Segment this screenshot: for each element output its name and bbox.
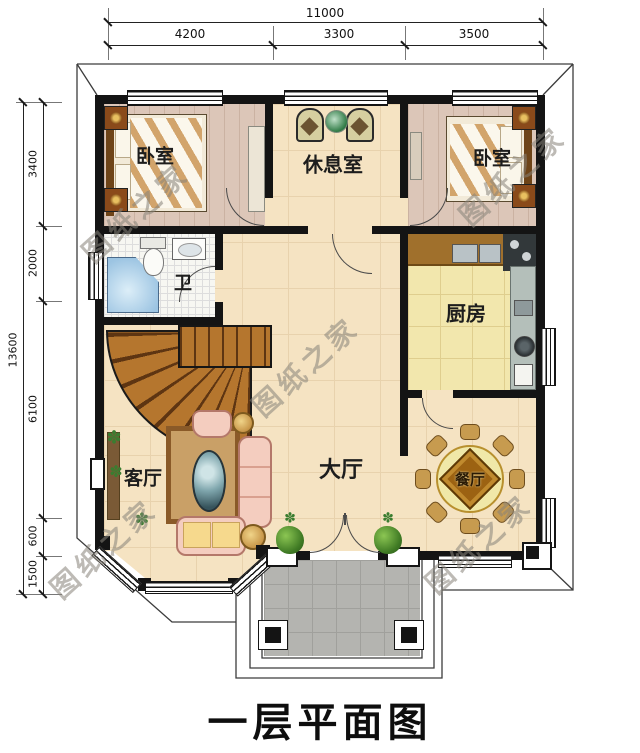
kitchen-appliance [514,364,533,386]
wall-interior [95,317,223,325]
pilaster-corner-fill [526,546,539,559]
bush [374,526,402,554]
side-table-round [232,412,254,434]
dim-left-total: 13600 [7,333,20,368]
dim-line-top-segments [108,45,544,46]
lounge-chair [296,108,324,142]
dim-line-top-total [108,22,544,23]
window-plain [90,458,105,490]
room-label-hall: 大厅 [319,452,363,484]
dim-extension [543,8,544,60]
dim-extension [405,26,406,60]
kitchen-appliance [514,300,533,316]
lounge-plant [325,110,348,133]
room-label-bathroom: 卫 [174,269,192,295]
dim-top-seg1: 4200 [175,27,206,41]
stove-burner [510,240,519,249]
window [284,90,388,106]
plant: ✽ [382,510,394,527]
dim-left-seg1: 3400 [27,150,40,178]
porch-column-core [265,627,281,643]
dim-top-seg3: 3500 [459,27,490,41]
nightstand [512,106,536,130]
kitchen-sink [452,244,478,263]
wall-interior [400,226,408,456]
bush [276,526,304,554]
dim-extension [36,301,62,302]
lounge-chair [346,108,374,142]
side-table [410,132,422,180]
staircase-run [178,325,272,368]
wall-interior [400,95,408,198]
toilet-bowl [143,248,164,276]
window [540,328,556,386]
nightstand [104,106,128,130]
plant: ✽ [284,510,296,527]
sofa-main [238,436,272,528]
sofa-single [192,410,232,438]
sink-basin [178,243,202,257]
dim-extension [108,8,109,60]
wall-interior [215,234,223,270]
dim-left-seg5: 1500 [27,560,40,588]
dim-top-seg2: 3300 [324,27,355,41]
coffee-table [192,450,226,512]
wall-interior [453,390,545,398]
window-bay [145,581,233,594]
room-label-kitchen: 厨房 [446,298,486,327]
dim-line-left-total [23,102,24,594]
kitchen-pot [514,336,535,357]
plant: ✽ [106,428,121,449]
dim-extension [36,226,62,227]
porch-column-core [401,627,417,643]
stove-burner [522,252,531,261]
dim-left-seg3: 6100 [27,395,40,423]
dim-extension [36,556,62,557]
room-label-dining: 餐厅 [455,469,485,490]
room-label-lounge: 休息室 [303,149,363,178]
plant: ✽ [109,462,122,482]
wall-interior [265,95,273,198]
window [540,498,556,548]
dim-extension [36,518,62,519]
wall-interior [408,390,422,398]
window [452,90,538,106]
kitchen-sink [479,244,501,263]
dim-extension [273,26,274,60]
dim-top-total: 11000 [306,6,344,20]
loveseat-cushion [183,522,211,548]
floor-plan: ✽ ✽ ✽ [0,0,640,753]
room-label-living: 客厅 [124,464,162,491]
dim-left-seg4: 600 [27,526,40,547]
wall-interior [372,226,545,234]
entry-door-center [344,513,346,525]
loveseat-cushion [212,522,240,548]
page-title: 一层平面图 [0,690,640,748]
window [127,90,223,106]
dim-left-seg2: 2000 [27,249,40,277]
